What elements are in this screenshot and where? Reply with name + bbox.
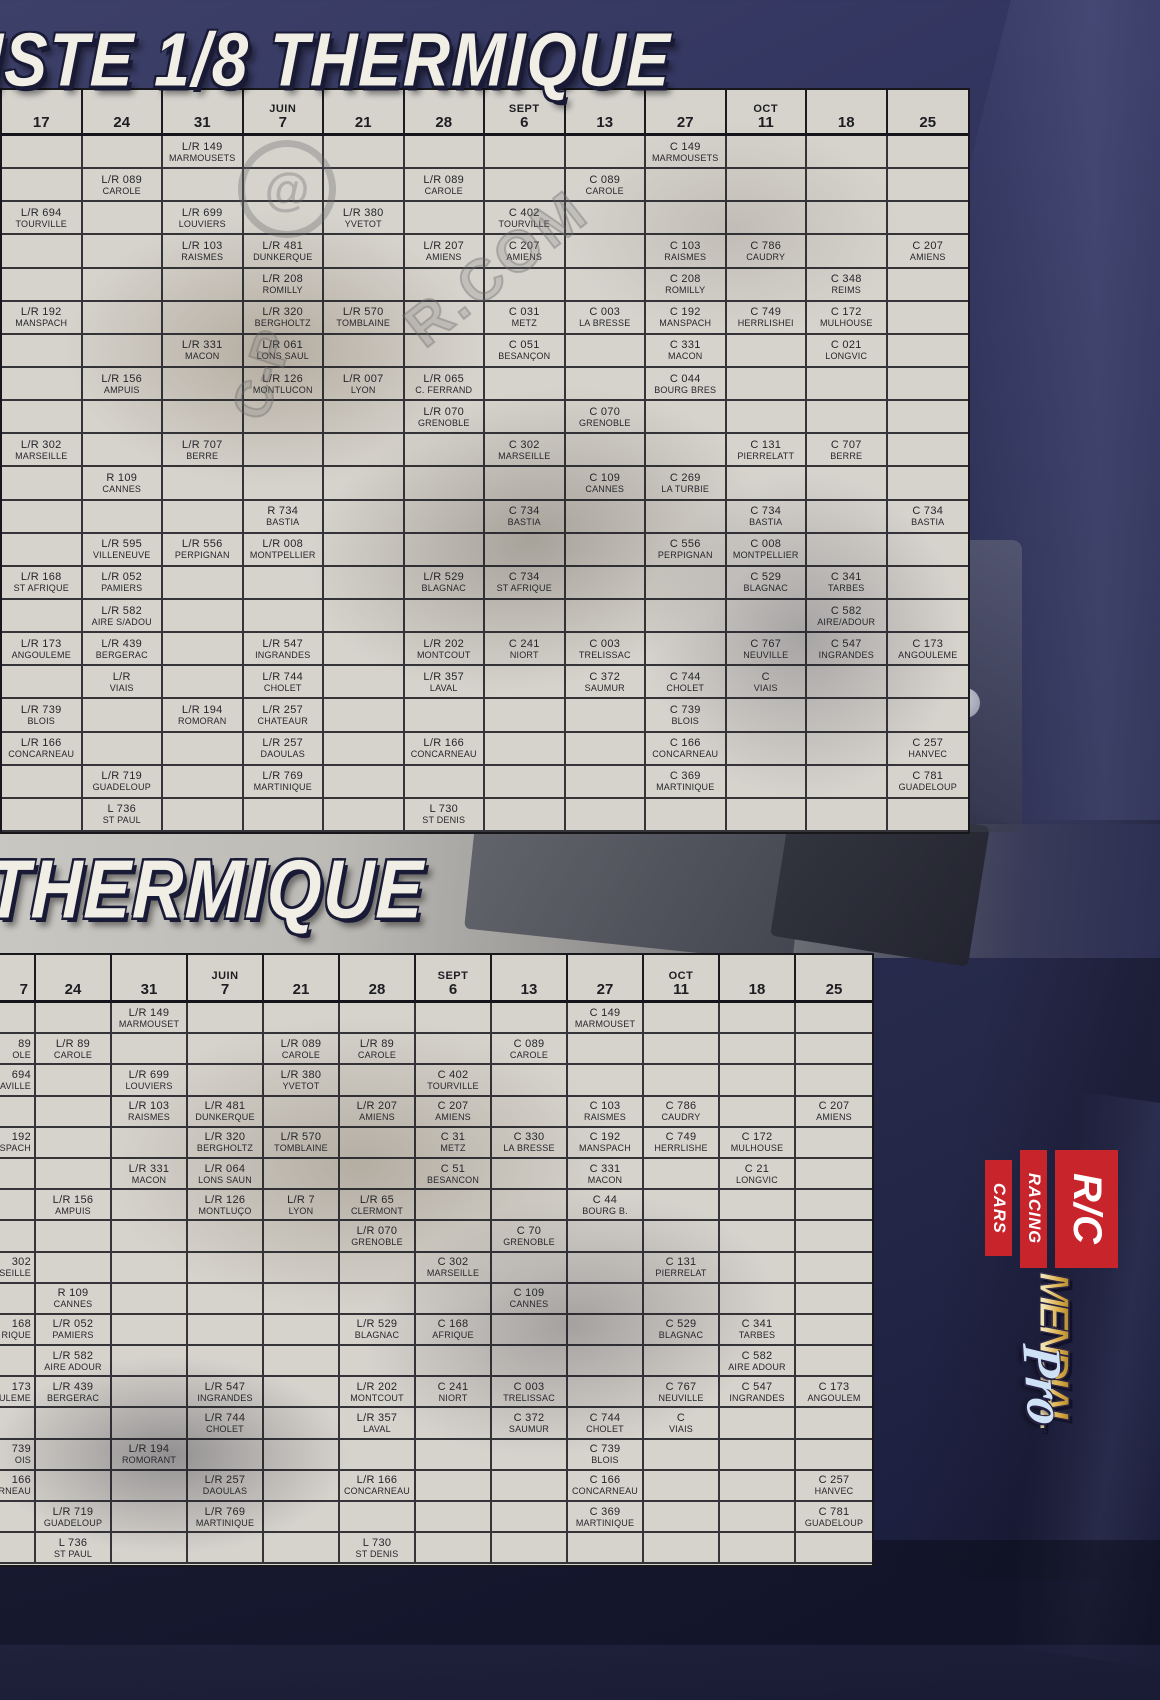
race-code: C 582	[742, 1350, 773, 1362]
race-cell: C 008MONTPELLIER	[727, 534, 808, 567]
race-code: L/R 103	[129, 1100, 170, 1112]
empty-cell	[163, 269, 244, 302]
race-cell: L/R 065C. FERRAND	[405, 368, 486, 401]
race-code: C 749	[750, 306, 781, 318]
empty-cell	[36, 1471, 112, 1502]
day-label: 25	[826, 982, 843, 998]
race-code: L/R 481	[205, 1100, 246, 1112]
date-header: 24	[36, 955, 112, 1003]
empty-cell	[807, 799, 888, 832]
race-cell: C 341TARBES	[720, 1315, 796, 1346]
empty-cell	[264, 1159, 340, 1190]
empty-cell	[416, 1408, 492, 1439]
race-code: C 149	[670, 141, 701, 153]
race-city: YVETOT	[282, 1081, 319, 1091]
empty-cell	[340, 1065, 416, 1096]
race-cell: C 302MARSEILLE	[416, 1253, 492, 1284]
race-city: ANGOULEME	[12, 650, 71, 660]
race-city: LYON	[289, 1206, 314, 1216]
empty-cell	[568, 1533, 644, 1564]
race-cell: L/R 481DUNKERQUE	[188, 1097, 264, 1128]
race-code: L/R 007	[343, 373, 384, 385]
empty-cell	[405, 434, 486, 467]
empty-cell	[492, 1471, 568, 1502]
race-cell: L/R 173ANGOULEME	[2, 633, 83, 666]
race-city: MARSEILLE	[427, 1268, 479, 1278]
race-city: HERRLISHEI	[738, 318, 794, 328]
race-code: C 582	[831, 605, 862, 617]
date-header: SEPT6	[416, 955, 492, 1003]
race-city: VILLENEUVE	[93, 550, 151, 560]
empty-cell	[163, 567, 244, 600]
race-cell: C 166CONCARNEAU	[568, 1471, 644, 1502]
empty-cell	[492, 1346, 568, 1377]
race-code: L/R 166	[21, 737, 62, 749]
race-city: PERPIGNAN	[175, 550, 230, 560]
empty-cell	[112, 1221, 188, 1252]
empty-cell	[188, 1003, 264, 1034]
race-city: BLAGNAC	[355, 1330, 399, 1340]
empty-cell	[405, 766, 486, 799]
empty-cell	[112, 1190, 188, 1221]
race-cell: L/R 302MARSEILLE	[2, 434, 83, 467]
race-code: L/R 547	[205, 1381, 246, 1393]
race-cell: C 257HANVEC	[888, 733, 969, 766]
empty-cell	[324, 799, 405, 832]
empty-cell	[807, 235, 888, 268]
race-code: L/R 699	[129, 1069, 170, 1081]
race-code: L/R 126	[262, 373, 303, 385]
empty-cell	[324, 501, 405, 534]
race-city: BERGERAC	[96, 650, 148, 660]
race-cell: L/R 357LAVAL	[405, 666, 486, 699]
race-city: BASTIA	[911, 517, 944, 527]
race-cell: C 331MACON	[646, 335, 727, 368]
race-cell: L/R 582AIRE ADOUR	[36, 1346, 112, 1377]
race-city: MARMOUSET	[119, 1019, 179, 1029]
race-city: CHOLET	[206, 1424, 244, 1434]
race-code: C 21	[745, 1163, 769, 1175]
race-cell: L/R 65CLERMONT	[340, 1190, 416, 1221]
race-city: CAROLE	[510, 1050, 548, 1060]
race-cell: C 582AIRE/ADOUR	[807, 600, 888, 633]
race-cell: C 089CAROLE	[566, 169, 647, 202]
race-city: ST AFRIQUE	[497, 583, 552, 593]
empty-cell	[888, 269, 969, 302]
race-city: MARTINIQUE	[196, 1518, 254, 1528]
race-cell: C 051BESANÇON	[485, 335, 566, 368]
race-city: PAMIERS	[101, 583, 142, 593]
race-city: TARBES	[828, 583, 865, 593]
race-city: GRENOBLE	[418, 418, 470, 428]
race-code: L/R 207	[357, 1100, 398, 1112]
race-city: RIQUE	[1, 1330, 31, 1340]
race-city: NEUVILLE	[658, 1393, 703, 1403]
empty-cell	[36, 1003, 112, 1034]
race-code: L/R 302	[21, 439, 62, 451]
empty-cell	[727, 269, 808, 302]
empty-cell	[188, 1346, 264, 1377]
empty-cell	[36, 1159, 112, 1190]
race-code: L/R 070	[357, 1225, 398, 1237]
race-cell: L/R 156AMPUIS	[83, 368, 164, 401]
race-city: TRELISSAC	[579, 650, 631, 660]
empty-cell	[324, 666, 405, 699]
race-cell: C 547INGRANDES	[720, 1377, 796, 1408]
race-city: CAROLE	[282, 1050, 320, 1060]
empty-cell	[644, 1284, 720, 1315]
race-city: DUNKERQUE	[195, 1112, 254, 1122]
date-header: JUIN7	[188, 955, 264, 1003]
race-city: PIERRELAT	[655, 1268, 706, 1278]
day-label: 11	[673, 982, 689, 998]
empty-cell	[646, 434, 727, 467]
race-code: L/R 207	[423, 240, 464, 252]
race-code: C 707	[831, 439, 862, 451]
empty-cell	[644, 1471, 720, 1502]
race-city: TOMBLAINE	[336, 318, 390, 328]
race-city: PIERRELATT	[737, 451, 794, 461]
race-code: C 149	[590, 1007, 621, 1019]
race-city: LAVAL	[430, 683, 458, 693]
race-code: C 529	[750, 571, 781, 583]
empty-cell	[644, 1159, 720, 1190]
race-code: L/R 739	[21, 704, 62, 716]
race-cell: C 744CHOLET	[568, 1408, 644, 1439]
race-city: RNEAU	[0, 1486, 31, 1496]
empty-cell	[646, 567, 727, 600]
race-city: TRELISSAC	[503, 1393, 555, 1403]
empty-cell	[83, 235, 164, 268]
rc-racing-cars-logo: R/C RACING CARS	[985, 1150, 1120, 1268]
empty-cell	[720, 1065, 796, 1096]
race-code: L/R 202	[357, 1381, 398, 1393]
empty-cell	[646, 799, 727, 832]
race-city: LA BRESSE	[503, 1143, 554, 1153]
race-code: L/R 052	[101, 571, 142, 583]
race-cell: L/R 202MONTCOUT	[340, 1377, 416, 1408]
race-code: L/R 481	[262, 240, 303, 252]
race-cell: L/R 207AMIENS	[340, 1097, 416, 1128]
date-header: OCT11	[727, 90, 808, 136]
race-cell: C 172MULHOUSE	[720, 1128, 796, 1159]
race-code: L/R 694	[21, 207, 62, 219]
empty-cell	[807, 699, 888, 732]
empty-cell	[416, 1034, 492, 1065]
race-code: L/R 257	[205, 1474, 246, 1486]
race-city: CHOLET	[586, 1424, 624, 1434]
race-cell: C 739BLOIS	[568, 1440, 644, 1471]
race-cell: L/R 126MONTLUCON	[244, 368, 325, 401]
race-code: C 372	[514, 1412, 545, 1424]
race-code: C 330	[514, 1131, 545, 1143]
race-city: TOMBLAINE	[274, 1143, 328, 1153]
race-cell: C 767NEUVILLE	[644, 1377, 720, 1408]
race-cell: L/R 739BLOIS	[2, 699, 83, 732]
calendar-table-1-8-thermique: 172431JUIN72128SEPT61327OCT111825 L/R 14…	[0, 88, 970, 834]
empty-cell	[416, 1502, 492, 1533]
race-cell: L/R 529BLAGNAC	[340, 1315, 416, 1346]
race-cell: CVIAIS	[644, 1408, 720, 1439]
empty-cell	[566, 368, 647, 401]
race-code: L/R 089	[423, 174, 464, 186]
race-city: NIORT	[510, 650, 539, 660]
race-city: CANNES	[585, 484, 624, 494]
race-cell: L/R 168ST AFRIQUE	[2, 567, 83, 600]
race-code: C 008	[750, 538, 781, 550]
race-code: C 70	[517, 1225, 541, 1237]
race-city: MACON	[668, 351, 703, 361]
race-cell: C 734BASTIA	[888, 501, 969, 534]
race-code: L/R 380	[343, 207, 384, 219]
race-city: ROMORANT	[122, 1455, 176, 1465]
day-label: 6	[449, 982, 457, 998]
race-cell: L/R 257CHATEAUR	[244, 699, 325, 732]
empty-cell	[0, 1502, 36, 1533]
race-city: AMIENS	[426, 252, 462, 262]
empty-cell	[405, 202, 486, 235]
empty-cell	[727, 136, 808, 169]
race-code: L/R 173	[21, 638, 62, 650]
empty-cell	[112, 1253, 188, 1284]
race-code: L/R 320	[262, 306, 303, 318]
day-label: 18	[838, 115, 855, 131]
race-cell: L/R 529BLAGNAC	[405, 567, 486, 600]
race-city: NEUVILLE	[743, 650, 788, 660]
race-city: MONTCOUT	[350, 1393, 404, 1403]
race-cell: L/R 331MACON	[163, 335, 244, 368]
race-cell: C 172MULHOUSE	[807, 302, 888, 335]
empty-cell	[796, 1533, 872, 1564]
day-label: 13	[596, 115, 613, 131]
empty-cell	[888, 567, 969, 600]
empty-cell	[485, 368, 566, 401]
race-code: L/R 529	[423, 571, 464, 583]
rc-logo-block: R/C	[1055, 1150, 1118, 1268]
race-code: C 172	[742, 1131, 773, 1143]
race-code: C 257	[912, 737, 943, 749]
race-cell: L/R 008MONTPELLIER	[244, 534, 325, 567]
empty-cell	[112, 1284, 188, 1315]
race-city: AVILLE	[0, 1081, 31, 1091]
race-code: L/R 156	[101, 373, 142, 385]
race-code: C 241	[509, 638, 540, 650]
race-code: C 207	[912, 240, 943, 252]
empty-cell	[188, 1284, 264, 1315]
empty-cell	[888, 401, 969, 434]
empty-cell	[727, 733, 808, 766]
empty-cell	[324, 169, 405, 202]
race-code: C 109	[514, 1287, 545, 1299]
empty-cell	[888, 467, 969, 500]
empty-cell	[416, 1440, 492, 1471]
empty-cell	[83, 699, 164, 732]
empty-cell	[796, 1346, 872, 1377]
race-city: DUNKERQUE	[253, 252, 312, 262]
race-cell: C 786CAUDRY	[644, 1097, 720, 1128]
empty-cell	[2, 467, 83, 500]
empty-cell	[807, 401, 888, 434]
empty-cell	[340, 1440, 416, 1471]
race-city: BOURG BRES	[654, 385, 716, 395]
date-header: OCT11	[644, 955, 720, 1003]
empty-cell	[264, 1533, 340, 1564]
race-city: AMIENS	[359, 1112, 395, 1122]
empty-cell	[492, 1097, 568, 1128]
day-label: 6	[520, 115, 528, 131]
race-city: AFRIQUE	[432, 1330, 473, 1340]
race-cell: C 241NIORT	[416, 1377, 492, 1408]
race-city: CONCARNEAU	[411, 749, 477, 759]
empty-cell	[405, 269, 486, 302]
empty-cell	[807, 136, 888, 169]
empty-cell	[888, 600, 969, 633]
date-header: 27	[568, 955, 644, 1003]
race-city: MONTPELLIER	[250, 550, 316, 560]
empty-cell	[644, 1440, 720, 1471]
empty-cell	[720, 1097, 796, 1128]
race-city: BERGHOLTZ	[197, 1143, 253, 1153]
race-city: CANNES	[102, 484, 141, 494]
race-code: L/R 719	[53, 1506, 94, 1518]
race-cell: L/R 439BERGERAC	[83, 633, 164, 666]
race-city: ST DENIS	[422, 815, 465, 825]
empty-cell	[796, 1221, 872, 1252]
race-code: C 051	[509, 339, 540, 351]
race-code: L/R 570	[281, 1131, 322, 1143]
empty-cell	[888, 302, 969, 335]
race-code: C 103	[670, 240, 701, 252]
race-cell: L/R 070GRENOBLE	[340, 1221, 416, 1252]
race-cell: C 166CONCARNEAU	[646, 733, 727, 766]
race-code: L/R 208	[262, 273, 303, 285]
empty-cell	[163, 169, 244, 202]
race-city: MARMOUSETS	[169, 153, 236, 163]
day-label: 27	[677, 115, 694, 131]
race-cell: C 749HERRLISHE	[644, 1128, 720, 1159]
race-cell: 166RNEAU	[0, 1471, 36, 1502]
empty-cell	[566, 534, 647, 567]
empty-cell	[646, 169, 727, 202]
race-cell: L/R 166CONCARNEAU	[405, 733, 486, 766]
race-cell: L/R 694TOURVILLE	[2, 202, 83, 235]
race-code: C 003	[589, 638, 620, 650]
empty-cell	[566, 699, 647, 732]
race-city: RAISMES	[128, 1112, 170, 1122]
race-city: BLOIS	[591, 1455, 619, 1465]
race-code: C 786	[750, 240, 781, 252]
race-city: BLAGNAC	[659, 1330, 703, 1340]
empty-cell	[405, 467, 486, 500]
empty-cell	[727, 368, 808, 401]
race-city: LYON	[351, 385, 376, 395]
race-code: C 786	[666, 1100, 697, 1112]
empty-cell	[0, 1408, 36, 1439]
race-cell: L/R 439BERGERAC	[36, 1377, 112, 1408]
day-label: 28	[369, 982, 386, 998]
race-city: TOURVILLE	[427, 1081, 479, 1091]
race-code: C 003	[589, 306, 620, 318]
empty-cell	[566, 269, 647, 302]
race-cell: R 734BASTIA	[244, 501, 325, 534]
race-code: L/R 7	[287, 1194, 315, 1206]
race-code: C 529	[666, 1318, 697, 1330]
race-cell: L/R 89CAROLE	[36, 1034, 112, 1065]
race-city: ANGOULEME	[898, 650, 957, 660]
empty-cell	[244, 600, 325, 633]
empty-cell	[807, 202, 888, 235]
empty-cell	[244, 567, 325, 600]
race-city: BLAGNAC	[422, 583, 466, 593]
race-cell: C 207AMIENS	[485, 235, 566, 268]
empty-cell	[646, 600, 727, 633]
race-city: OLE	[12, 1050, 31, 1060]
race-city: SAUMUR	[509, 1424, 549, 1434]
race-cell: C 302MARSEILLE	[485, 434, 566, 467]
empty-cell	[568, 1377, 644, 1408]
race-cell: L/R 089CAROLE	[83, 169, 164, 202]
race-cell: C 192MANSPACH	[646, 302, 727, 335]
race-code: C 089	[514, 1038, 545, 1050]
empty-cell	[566, 799, 647, 832]
race-cell: L/R 320BERGHOLTZ	[244, 302, 325, 335]
race-cell: C 330LA BRESSE	[492, 1128, 568, 1159]
race-city: LONS SAUL	[257, 351, 309, 361]
day-label: 27	[597, 982, 614, 998]
empty-cell	[36, 1065, 112, 1096]
race-city: LONS SAUN	[198, 1175, 252, 1185]
race-cell: C 348REIMS	[807, 269, 888, 302]
empty-cell	[340, 1003, 416, 1034]
race-code: L/R 156	[53, 1194, 94, 1206]
empty-cell	[324, 434, 405, 467]
race-city: BOURG B.	[582, 1206, 628, 1216]
race-cell: R 109CANNES	[83, 467, 164, 500]
race-cell: L/R 380YVETOT	[264, 1065, 340, 1096]
date-header: 31	[112, 955, 188, 1003]
empty-cell	[264, 1440, 340, 1471]
race-city: GUADELOUP	[44, 1518, 102, 1528]
race-city: BESANÇON	[498, 351, 550, 361]
race-city: MARTINIQUE	[576, 1518, 634, 1528]
race-code: C 031	[509, 306, 540, 318]
empty-cell	[720, 1502, 796, 1533]
empty-cell	[324, 567, 405, 600]
race-city: MONTCOUT	[417, 650, 471, 660]
race-cell: L/R 194ROMORANT	[112, 1440, 188, 1471]
race-city: MONTLUÇO	[198, 1206, 251, 1216]
race-cell: C 044BOURG BRES	[646, 368, 727, 401]
race-city: MARTINIQUE	[254, 782, 312, 792]
race-code: 192	[12, 1131, 31, 1143]
empty-cell	[796, 1253, 872, 1284]
empty-cell	[0, 1159, 36, 1190]
race-cell: L/R 719GUADELOUP	[83, 766, 164, 799]
race-code: C 547	[742, 1381, 773, 1393]
empty-cell	[83, 401, 164, 434]
race-code: C 734	[912, 505, 943, 517]
race-code: L/R 357	[423, 671, 464, 683]
race-code: L/R 439	[101, 638, 142, 650]
empty-cell	[324, 733, 405, 766]
empty-cell	[644, 1533, 720, 1564]
empty-cell	[324, 269, 405, 302]
race-city: AIRE S/ADOU	[92, 617, 152, 627]
race-code: L/R 064	[205, 1163, 246, 1175]
race-code: C 131	[750, 439, 781, 451]
race-code: C 172	[831, 306, 862, 318]
race-city: LAVAL	[363, 1424, 391, 1434]
